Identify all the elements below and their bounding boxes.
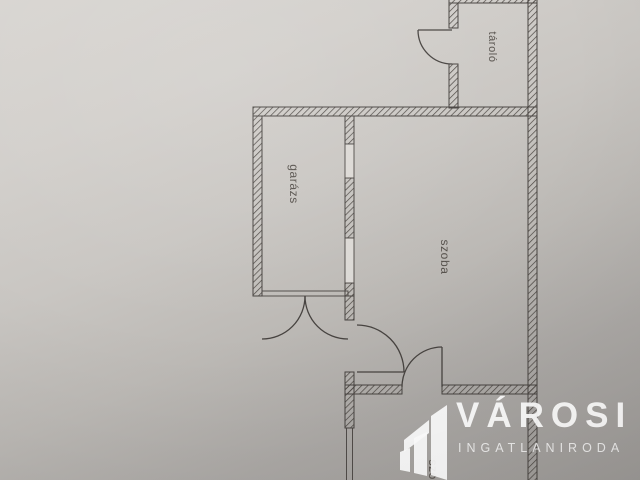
wall-storage-left-upper [449,3,458,28]
room-label-storage: tároló [486,31,498,62]
garage-door-panel [262,291,348,296]
wall-storage-left-lower [449,64,458,108]
window-divider-lower [345,238,354,283]
window-bottomroom-left [347,428,353,480]
wall-room-bottom-left [345,385,402,394]
room-label-garage: garázs [287,164,301,204]
watermark-brand-name: VÁROSI [456,396,632,436]
watermark-logo: VÁROSI INGATLANIRODA [396,392,640,480]
wall-bottomroom-left [345,394,354,428]
garage-door-arc-left [262,296,305,339]
room-door-arc [357,325,404,372]
wall-corridor-upper [345,296,354,320]
window-divider-upper [345,144,354,178]
doors [262,30,452,387]
wall-garage-left [253,116,262,296]
watermark-subtitle: INGATLANIRODA [458,441,624,455]
room-label-room-main: szoba [438,239,452,274]
wall-divider-b [345,178,354,238]
wall-top [253,107,537,116]
floorplan-photo: tároló garázs szoba szoba VÁROSI INGATLA… [0,0,640,480]
wall-divider-c [345,283,354,296]
wall-storage-top [449,0,537,3]
wall-divider-a [345,116,354,144]
brand-building-icon [398,396,456,480]
rooms-door-arc [402,347,442,387]
storage-door-arc [418,30,452,64]
garage-door-arc-right [305,296,348,339]
